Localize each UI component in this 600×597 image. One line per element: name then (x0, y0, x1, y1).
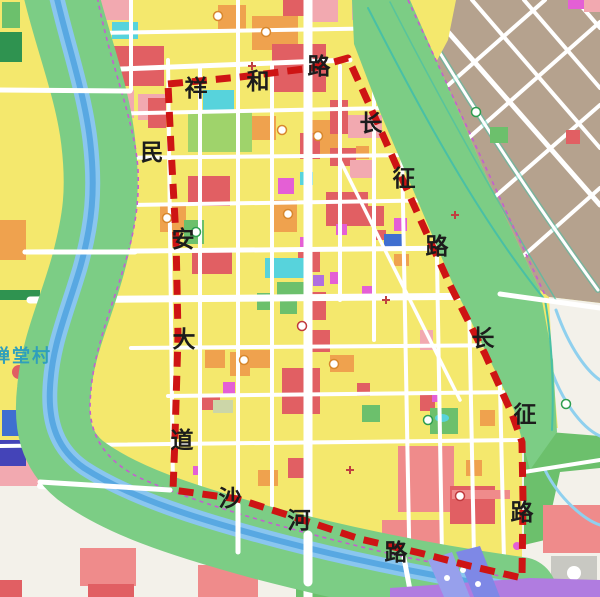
map-canvas: 祥 和 路 民 安 大 道 长 征 路 长 征 路 沙 河 路 禅堂村 (0, 0, 600, 597)
label-xianghe-char: 祥 (185, 75, 208, 102)
label-changzheng-char: 征 (514, 402, 537, 428)
label-changzheng-char: 征 (393, 166, 416, 192)
block (0, 32, 22, 62)
label-xianghe-char: 和 (247, 69, 270, 95)
label-changzheng-char: 路 (426, 233, 450, 260)
village-label: 禅堂村 (0, 345, 52, 367)
label-changzheng-char: 路 (511, 499, 535, 526)
label-changzheng-char: 长 (360, 111, 384, 137)
label-minan-char: 民 (141, 140, 164, 166)
block (2, 2, 20, 28)
block (80, 548, 136, 586)
label-minan-char: 安 (172, 226, 195, 253)
bottom-right-pink-block (543, 505, 600, 553)
label-shahe-char: 路 (385, 539, 409, 566)
label-minan-char: 道 (171, 427, 194, 454)
label-shahe-char: 河 (288, 508, 311, 534)
gray-block-dot (567, 566, 581, 580)
block (0, 580, 22, 597)
block (0, 220, 26, 260)
label-changzheng-char: 长 (472, 326, 496, 352)
planning-map: 祥 和 路 民 安 大 道 长 征 路 长 征 路 沙 河 路 禅堂村 (0, 0, 600, 597)
block (88, 584, 134, 597)
label-shahe-char: 沙 (219, 486, 242, 512)
label-xianghe-char: 路 (308, 53, 332, 80)
label-minan-char: 大 (173, 327, 196, 353)
